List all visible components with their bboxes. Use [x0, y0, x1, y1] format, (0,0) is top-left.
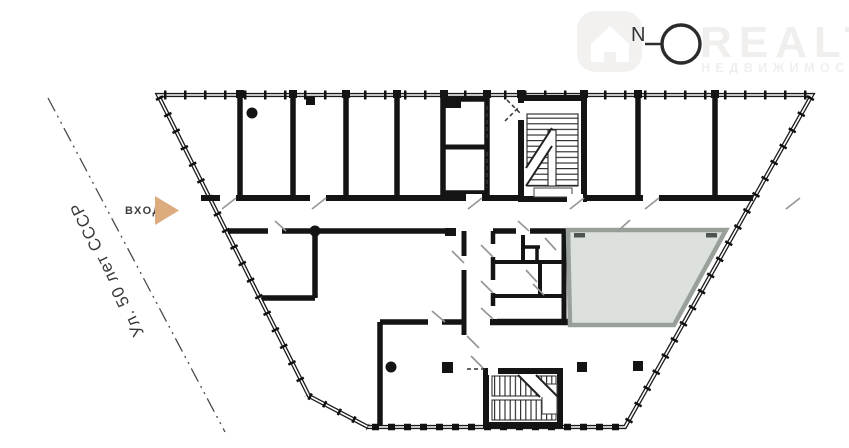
watermark-brand: REALT [700, 18, 849, 67]
elevator-shafts [443, 96, 487, 193]
entrance-arrow-icon [155, 196, 179, 225]
floorplan-canvas: REALT НЕДВИЖИМОСТЬ N Ул. 50 лет СССР ВХО… [0, 0, 849, 448]
watermark-logo: REALT НЕДВИЖИМОСТЬ [577, 11, 849, 75]
column-square [633, 361, 643, 371]
watermark-tagline: НЕДВИЖИМОСТЬ [701, 61, 849, 75]
column-dot [310, 226, 321, 237]
entrance-marker: ВХОД [125, 196, 179, 225]
column-square [442, 362, 453, 373]
street-name-label: Ул. 50 лет СССР [66, 199, 148, 340]
compass-n-label: N [631, 24, 645, 46]
column-dot [386, 362, 397, 373]
highlighted-room[interactable] [568, 230, 726, 325]
column-square [577, 362, 587, 372]
room-corner-mark [574, 233, 585, 238]
room-corner-mark [706, 233, 717, 238]
floorplan-page: REALT НЕДВИЖИМОСТЬ N Ул. 50 лет СССР ВХО… [0, 0, 849, 448]
column-dot [247, 108, 258, 119]
compass-circle [662, 25, 700, 63]
